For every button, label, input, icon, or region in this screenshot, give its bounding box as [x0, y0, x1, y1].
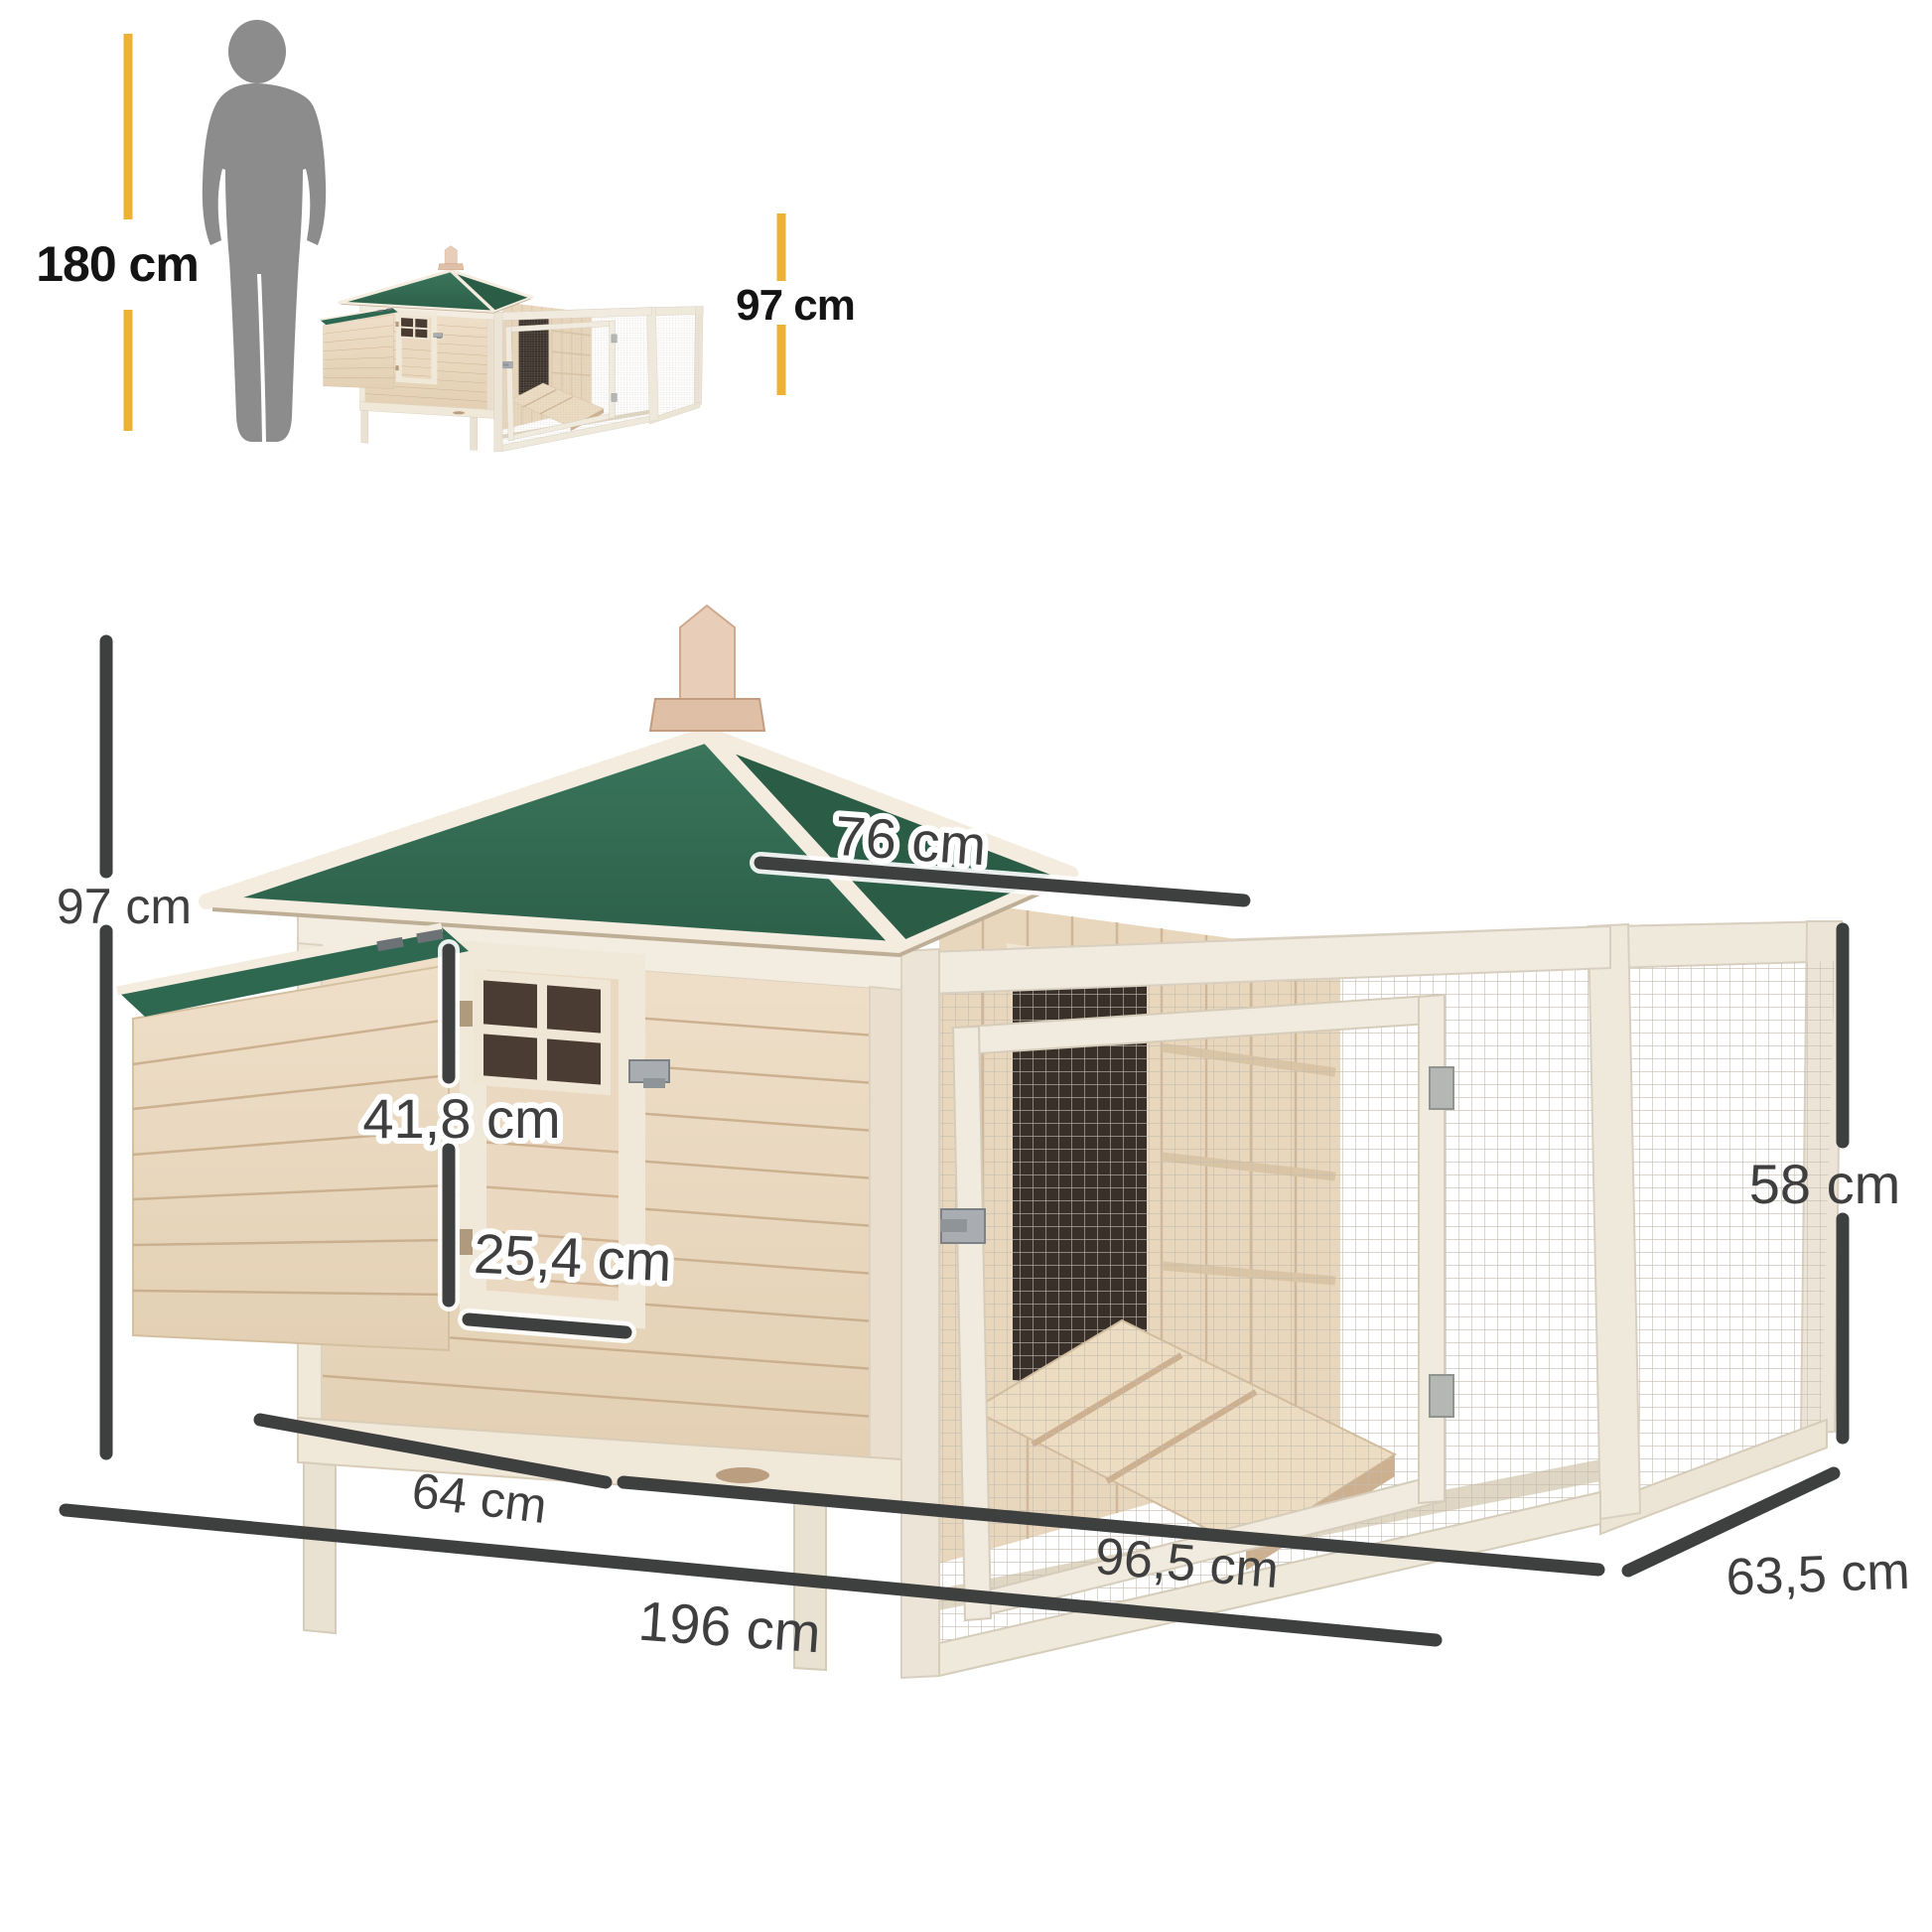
scale-figure: 180 cm 97 cm — [36, 20, 855, 452]
coop-roof — [207, 606, 1070, 955]
run-depth-label: 63,5 cm — [1725, 1543, 1911, 1606]
person-height-label: 180 cm — [36, 236, 199, 292]
person-silhouette — [203, 20, 326, 442]
total-length-label: 196 cm — [636, 1589, 823, 1665]
tray-handle-slot — [716, 1467, 769, 1483]
door-height-label: 41,8 cm — [362, 1087, 560, 1150]
roof-finial — [680, 606, 735, 699]
total-height-label: 97 cm — [57, 879, 192, 934]
roof-width-label: 76 cm — [833, 804, 989, 877]
run-door-hinge-icon — [1430, 1375, 1453, 1417]
coop-thumbnail — [320, 246, 703, 452]
roof-finial-base — [650, 699, 764, 731]
run-door-hinge-icon — [1430, 1067, 1453, 1109]
run-right-mesh — [1618, 961, 1835, 1505]
thumb-coop-height-label: 97 cm — [736, 281, 855, 330]
door-latch-bolt-icon — [643, 1078, 665, 1088]
run-height-label: 58 cm — [1749, 1153, 1901, 1215]
run-left-post — [901, 949, 939, 1678]
door-width-label: 25,4 cm — [473, 1222, 673, 1294]
house-corner-trim-right — [870, 987, 901, 1459]
door-hinge-icon — [459, 1001, 473, 1027]
door-hinge-icon — [459, 1229, 473, 1255]
house-leg-left — [304, 1462, 336, 1633]
product-dimension-diagram: 180 cm 97 cm 97 cm 76 cm 41,8 cm 25,4 cm… — [0, 0, 1932, 1932]
